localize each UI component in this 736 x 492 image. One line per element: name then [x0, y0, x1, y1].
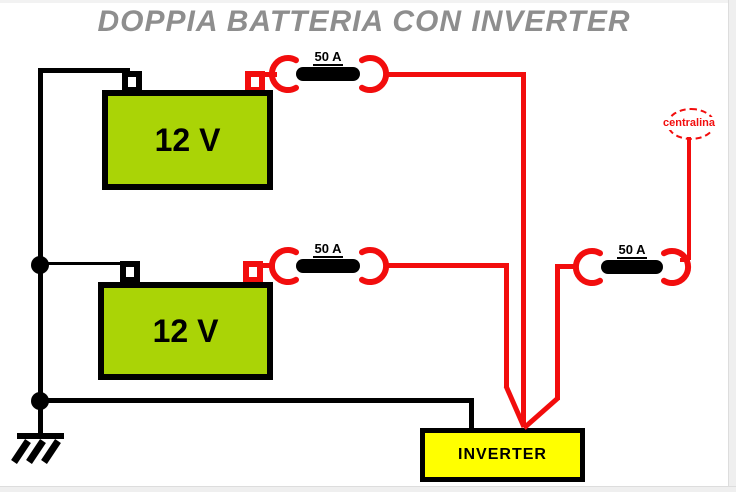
battery1-negative-wire [38, 68, 130, 73]
canvas-edge-bottom [0, 486, 736, 492]
battery1-positive-stub-wire [263, 72, 277, 77]
fuse2-to-inverter-wire-horizontal [384, 263, 505, 268]
fuse2-left-clip-icon [272, 250, 296, 282]
fuse1-right-clip-icon [362, 58, 386, 90]
junction-dot [31, 392, 49, 410]
canvas-edge-right [728, 0, 736, 492]
fuse2-to-inverter-wire-vertical [504, 263, 509, 387]
fuse2-rating-label: 50 A [296, 241, 360, 256]
battery2-label: 12 V [153, 313, 219, 350]
ground-hatch-icon [29, 441, 43, 462]
fuse3-body [601, 260, 663, 274]
ground-bar [17, 433, 64, 439]
battery1-label: 12 V [155, 122, 221, 159]
centralina-wire-elbow [680, 258, 690, 262]
inverter-negative-wire-vertical [469, 398, 474, 430]
diagram-title: DOPPIA BATTERIA CON INVERTER [0, 5, 728, 39]
fuse1-to-inverter-wire-horizontal [384, 72, 526, 77]
battery2-negative-terminal [120, 261, 140, 283]
ground-hatch-icon [44, 441, 58, 462]
fuse2-body [296, 259, 360, 273]
fuse3-right-clip-icon [664, 251, 688, 283]
centralina-label: centralina [650, 117, 728, 130]
battery2-positive-terminal [243, 261, 263, 283]
battery2-negative-wire [41, 262, 125, 265]
circuit-diagram: DOPPIA BATTERIA CON INVERTER 12 V 12 V 5… [0, 0, 736, 492]
battery1: 12 V [102, 90, 273, 190]
inverter-negative-wire-horizontal [38, 398, 474, 403]
centralina-wire-vertical [687, 137, 691, 260]
inverter-box: INVERTER [420, 428, 585, 482]
battery2: 12 V [98, 282, 273, 380]
fuse1-body [296, 67, 360, 81]
fuse1-to-inverter-wire-vertical [521, 72, 526, 426]
fuse3-diagonal-wire [524, 398, 558, 428]
fuse3-to-inverter-wire-vertical [555, 264, 560, 400]
junction-dot [31, 256, 49, 274]
negative-bus-wire [38, 68, 43, 438]
fuse3-left-clip-icon [576, 251, 600, 283]
canvas-edge-top [0, 0, 736, 3]
fuse3-rating-label: 50 A [601, 242, 663, 257]
fuse2-right-clip-icon [362, 250, 386, 282]
fuse1-rating-label: 50 A [296, 49, 360, 64]
battery2-positive-stub-wire [261, 263, 275, 268]
inverter-label: INVERTER [458, 446, 547, 464]
ground-hatch-icon [14, 441, 28, 462]
